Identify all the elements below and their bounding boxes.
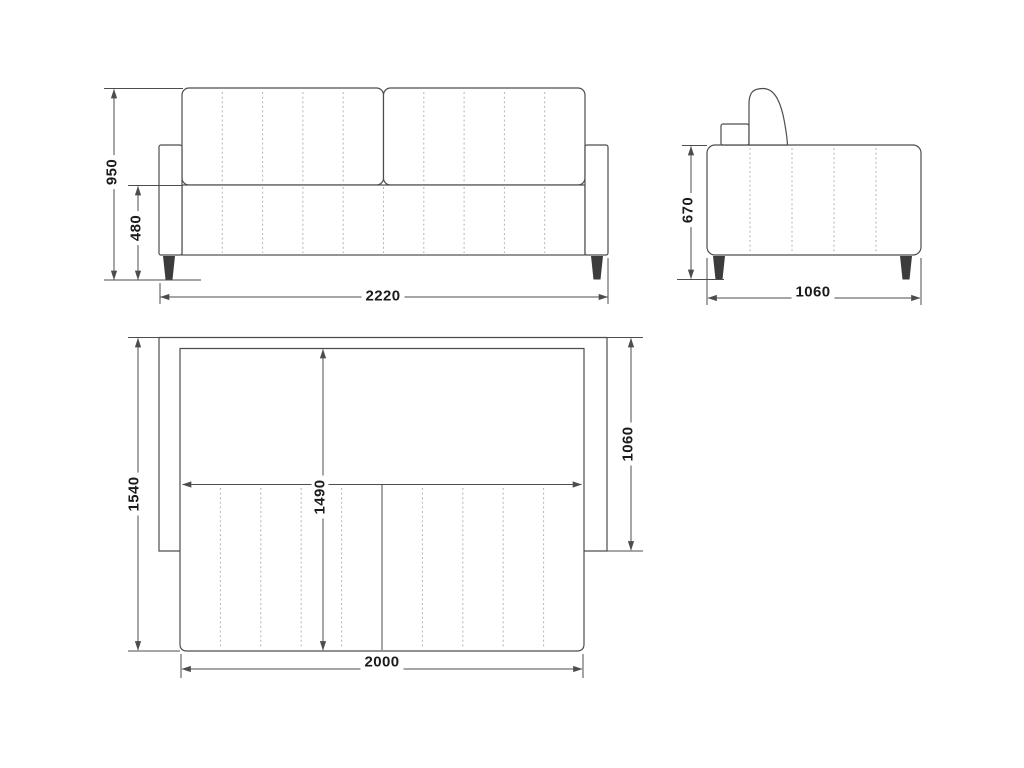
dim-label-480: 480 bbox=[128, 211, 145, 245]
technical-drawing: 950 480 2220 670 1060 1540 1490 1060 200… bbox=[0, 0, 1024, 768]
front-back-cushion-left bbox=[182, 88, 384, 185]
side-back-cushion bbox=[749, 89, 788, 146]
front-view bbox=[104, 88, 608, 304]
front-armrest-left bbox=[159, 145, 182, 255]
dim-label-1060-side: 1060 bbox=[792, 284, 835, 301]
side-leg-left bbox=[713, 256, 725, 280]
side-leg-right bbox=[900, 256, 912, 280]
front-armrest-right bbox=[585, 145, 608, 255]
drawing-linework bbox=[0, 0, 1024, 768]
dim-label-2000: 2000 bbox=[361, 654, 404, 671]
side-legs bbox=[713, 256, 912, 280]
side-view bbox=[677, 89, 921, 306]
dim-label-670: 670 bbox=[680, 193, 697, 227]
front-leg-right bbox=[591, 256, 603, 280]
top-view bbox=[128, 338, 643, 679]
dim-label-1060-top: 1060 bbox=[620, 423, 637, 466]
top-armrest-right bbox=[584, 338, 607, 552]
dim-label-950: 950 bbox=[104, 155, 121, 189]
front-legs bbox=[163, 256, 603, 280]
side-body bbox=[707, 145, 921, 255]
top-armrest-left bbox=[159, 338, 180, 552]
dim-label-2220: 2220 bbox=[362, 288, 405, 305]
side-pillow bbox=[721, 124, 749, 145]
dim-label-1540: 1540 bbox=[126, 473, 143, 516]
front-back-cushion-right bbox=[384, 88, 586, 185]
front-leg-left bbox=[163, 256, 175, 280]
dim-label-1490: 1490 bbox=[312, 476, 329, 519]
